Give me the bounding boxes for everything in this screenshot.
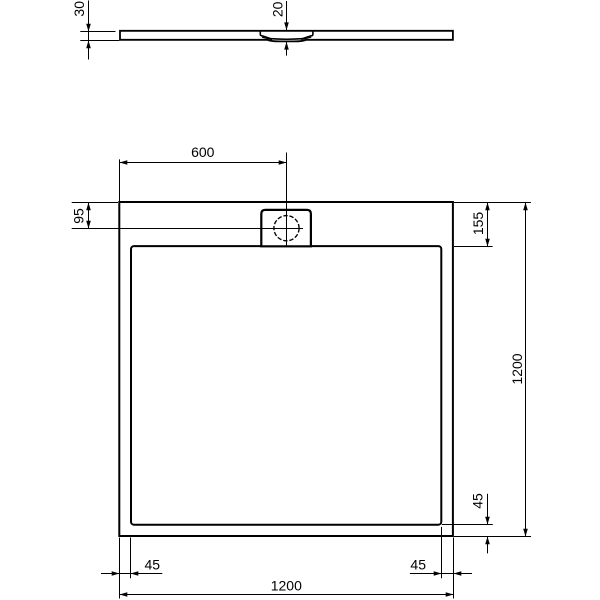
svg-text:45: 45	[145, 556, 161, 572]
svg-text:95: 95	[70, 208, 86, 224]
svg-text:1200: 1200	[271, 578, 302, 594]
svg-text:600: 600	[191, 144, 215, 160]
svg-text:45: 45	[410, 556, 426, 572]
svg-text:20: 20	[270, 1, 286, 17]
svg-text:30: 30	[71, 1, 87, 17]
svg-text:1200: 1200	[509, 353, 525, 384]
svg-text:45: 45	[470, 493, 486, 509]
svg-text:155: 155	[470, 212, 486, 236]
